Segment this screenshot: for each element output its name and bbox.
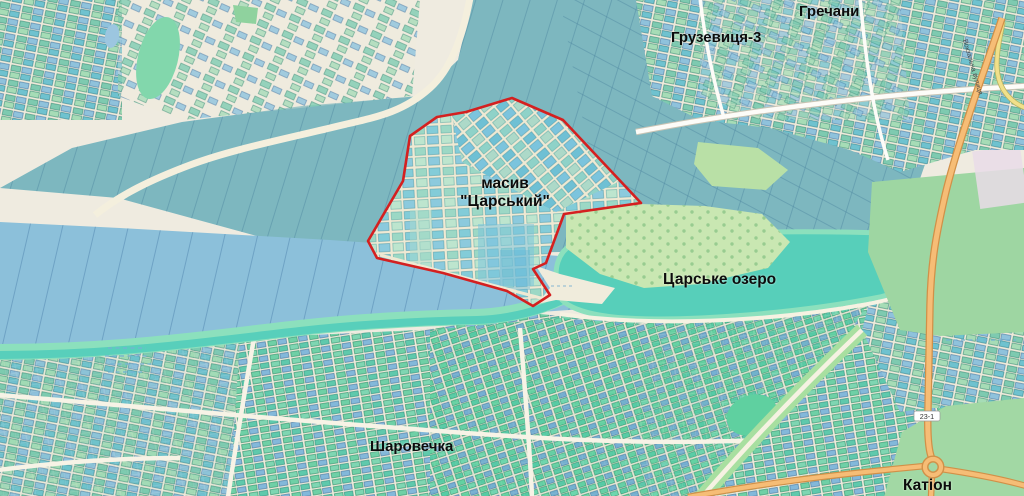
park-small-top — [233, 5, 258, 24]
map-canvas[interactable]: Вокзальна вулиця 23-1 Гречани Грузевиця-… — [0, 0, 1024, 496]
label-masyv-line2: "Царський" — [428, 193, 582, 211]
svg-text:23-1: 23-1 — [920, 412, 934, 421]
road-ref-badge: 23-1 — [914, 411, 940, 421]
map-graphics: Вокзальна вулиця 23-1 — [0, 0, 1024, 496]
label-kation: Катіон — [903, 477, 952, 495]
label-hrechany: Гречани — [799, 3, 859, 20]
label-sharovechka: Шаровечка — [370, 438, 453, 455]
label-masyv-line1: масив — [428, 175, 582, 193]
label-masyv-tsarskyi: масив "Царський" — [428, 175, 582, 211]
residential-pink — [972, 145, 1024, 209]
label-gruzevytsia-3: Грузевиця-3 — [671, 29, 761, 46]
label-tsarske-ozero: Царське озеро — [663, 271, 776, 289]
